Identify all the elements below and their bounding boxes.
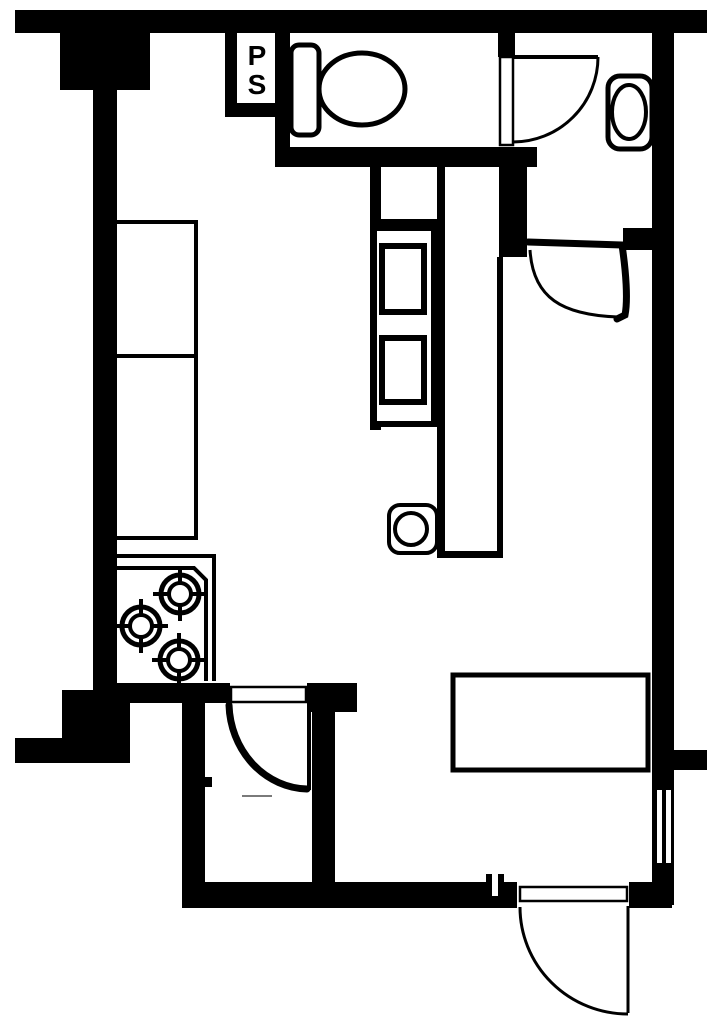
bottom-wall-notch-tick-right bbox=[498, 874, 504, 886]
bottom-wall-notch bbox=[492, 882, 498, 896]
shelf-compartment-top bbox=[382, 246, 424, 312]
ps-shaft-label-line2: S bbox=[248, 69, 267, 100]
powder-door-swing-arc-icon bbox=[530, 250, 618, 317]
powder-door-lintel bbox=[528, 242, 622, 245]
floor-plan-svg: P S bbox=[0, 0, 723, 1024]
floor-plan-page: P S bbox=[0, 0, 723, 1024]
entry-door-swing-arc-icon bbox=[520, 907, 628, 1014]
left-bottom-pier-foot bbox=[15, 738, 65, 763]
wc-bottom-wall bbox=[275, 147, 537, 167]
entry-threshold bbox=[520, 887, 627, 901]
wc-left-wall bbox=[275, 33, 290, 167]
window-slit-left bbox=[657, 790, 662, 863]
kitchen bbox=[108, 222, 214, 683]
closet-right-wall bbox=[312, 712, 335, 890]
stove-burner-icon bbox=[114, 599, 168, 653]
powder-door-leaf bbox=[617, 245, 626, 319]
closet-room bbox=[229, 703, 309, 796]
bottom-wall-notch-tick-left bbox=[486, 874, 492, 886]
partition-mid-line bbox=[437, 165, 445, 557]
toilet-room bbox=[291, 45, 405, 135]
ps-shaft-label-line1: P bbox=[248, 40, 267, 71]
toilet-tank-icon bbox=[291, 45, 319, 135]
ps-shaft-bottom-wall bbox=[225, 103, 277, 117]
window-slit-right bbox=[666, 790, 671, 863]
top-wall bbox=[15, 10, 707, 33]
closet-door-stop bbox=[205, 777, 212, 787]
table-icon bbox=[453, 675, 648, 770]
closet-left-wall bbox=[182, 703, 205, 890]
closet-door-swing-arc-icon bbox=[229, 705, 307, 789]
main-room bbox=[453, 675, 648, 1014]
closet-corner-pier bbox=[307, 683, 357, 712]
toilet-bowl-icon bbox=[319, 53, 405, 125]
ps-shaft: P S bbox=[248, 40, 267, 100]
powder-door-right-stub bbox=[623, 228, 652, 250]
right-wall-exterior-stub bbox=[674, 750, 707, 770]
shelf-compartment-bottom bbox=[382, 338, 424, 402]
powder-room-door bbox=[528, 242, 626, 319]
bath-door-swing-arc-icon bbox=[513, 57, 598, 142]
bath-partition-stub bbox=[499, 147, 527, 257]
bath-door-opening bbox=[500, 57, 513, 145]
right-wall bbox=[652, 33, 674, 905]
openings bbox=[231, 57, 671, 908]
stove-burner-icon bbox=[152, 633, 206, 683]
partition-bottom-line bbox=[437, 551, 503, 558]
bath-door-head-stub bbox=[498, 33, 515, 57]
central-partition bbox=[370, 165, 503, 558]
powder-room bbox=[513, 57, 652, 149]
kitchen-counter bbox=[115, 222, 196, 538]
closet-top-wall bbox=[110, 683, 230, 703]
partition-right-line bbox=[497, 257, 503, 557]
closet-door-threshold bbox=[231, 687, 306, 702]
